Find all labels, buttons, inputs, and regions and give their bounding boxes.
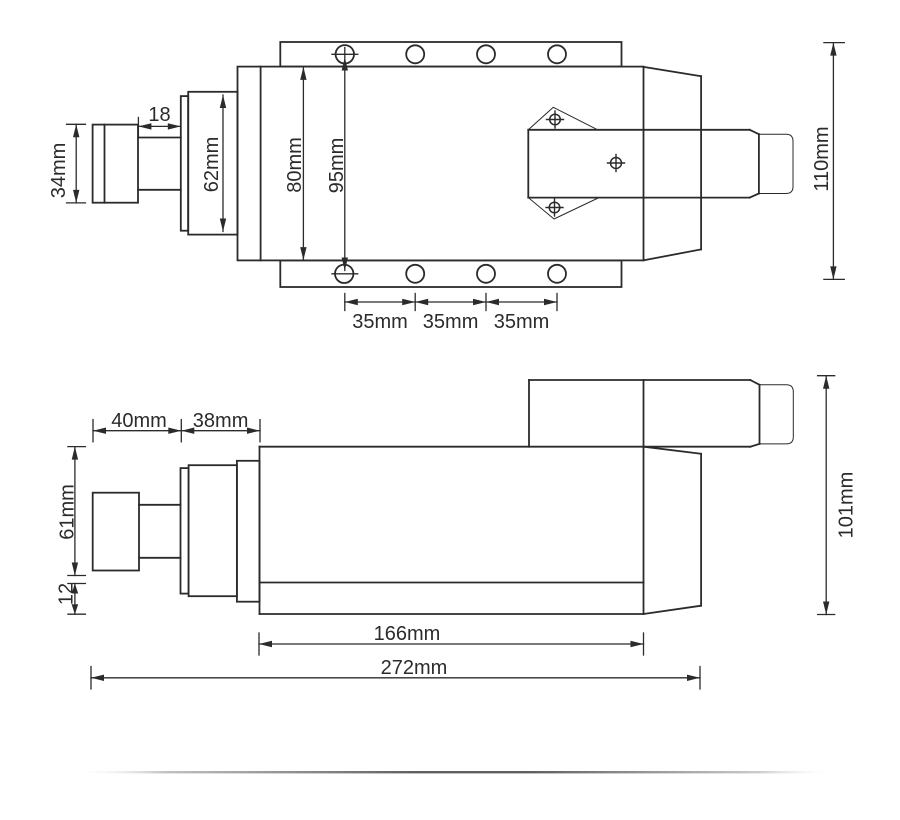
svg-text:80mm: 80mm bbox=[284, 137, 306, 193]
svg-text:12: 12 bbox=[56, 583, 78, 605]
svg-text:35mm: 35mm bbox=[423, 311, 479, 333]
svg-text:35mm: 35mm bbox=[352, 311, 408, 333]
svg-text:62mm: 62mm bbox=[201, 137, 223, 193]
svg-text:166mm: 166mm bbox=[374, 623, 441, 645]
svg-text:35mm: 35mm bbox=[494, 311, 550, 333]
svg-text:61mm: 61mm bbox=[56, 484, 78, 540]
svg-text:101mm: 101mm bbox=[835, 472, 857, 539]
svg-text:18: 18 bbox=[148, 104, 170, 126]
svg-text:95mm: 95mm bbox=[326, 138, 348, 194]
svg-text:272mm: 272mm bbox=[381, 657, 448, 679]
svg-text:110mm: 110mm bbox=[811, 126, 833, 191]
svg-text:38mm: 38mm bbox=[193, 410, 249, 432]
svg-text:40mm: 40mm bbox=[111, 410, 167, 432]
svg-text:34mm: 34mm bbox=[48, 143, 70, 199]
